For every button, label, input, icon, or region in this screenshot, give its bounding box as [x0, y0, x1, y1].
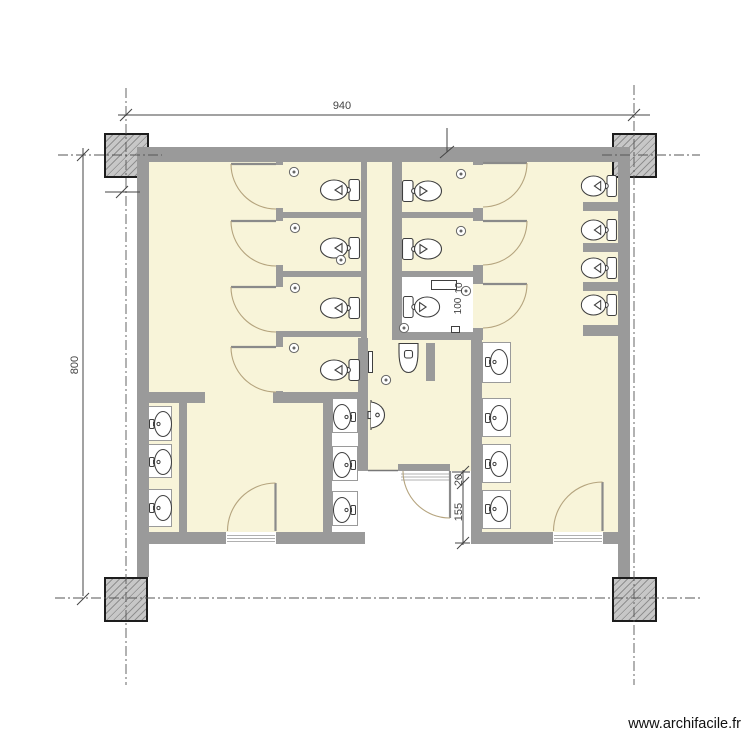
dimension-label-stall-a: 100 [453, 286, 465, 326]
toilet-icon [581, 258, 616, 279]
toilet-icon [403, 239, 442, 260]
door-threshold [226, 471, 603, 544]
stall-symbol-icon [336, 255, 345, 264]
floor-plan-canvas: 940 800 20 155 10 100 www.archifacile.fr [0, 0, 750, 750]
stall-symbol-icon [456, 226, 465, 235]
sink-icon [334, 453, 356, 478]
sink-icon [150, 412, 172, 437]
sink-icon [150, 450, 172, 475]
plan-linework [0, 0, 750, 750]
stall-symbol-icon [290, 283, 299, 292]
stall-symbol-icon [399, 323, 408, 332]
toilet-icon [581, 176, 616, 197]
urinal-icon [399, 344, 418, 373]
toilet-icon [403, 181, 442, 202]
dimension-label-left: 800 [69, 335, 81, 395]
dimension-line [77, 109, 650, 605]
watermark-url: www.archifacile.fr [628, 716, 741, 732]
toilet-icon [321, 360, 360, 381]
dimension-label-top: 940 [312, 100, 372, 112]
toilet-icon [403, 297, 439, 318]
stall-symbol-icon [290, 223, 299, 232]
sink-icon [486, 452, 508, 477]
toilet-icon [321, 180, 360, 201]
stall-symbol-icon [289, 167, 298, 176]
sink-icon [486, 406, 508, 431]
toilet-icon [581, 220, 616, 241]
sink-icon [486, 497, 508, 522]
stall-symbol-icon [381, 375, 390, 384]
sink-icon [334, 498, 356, 523]
sink-icon [150, 496, 172, 521]
corner-sink-icon [368, 400, 385, 430]
toilet-icon [321, 298, 360, 319]
sink-icon [334, 405, 356, 430]
sink-icon [486, 350, 508, 375]
dimension-label-entry-b: 20 [453, 468, 465, 492]
stall-symbol-icon [289, 343, 298, 352]
dimension-label-entry-a: 155 [453, 495, 465, 529]
toilet-icon [581, 295, 616, 316]
centerline [55, 85, 700, 685]
stall-symbol-icon [456, 169, 465, 178]
